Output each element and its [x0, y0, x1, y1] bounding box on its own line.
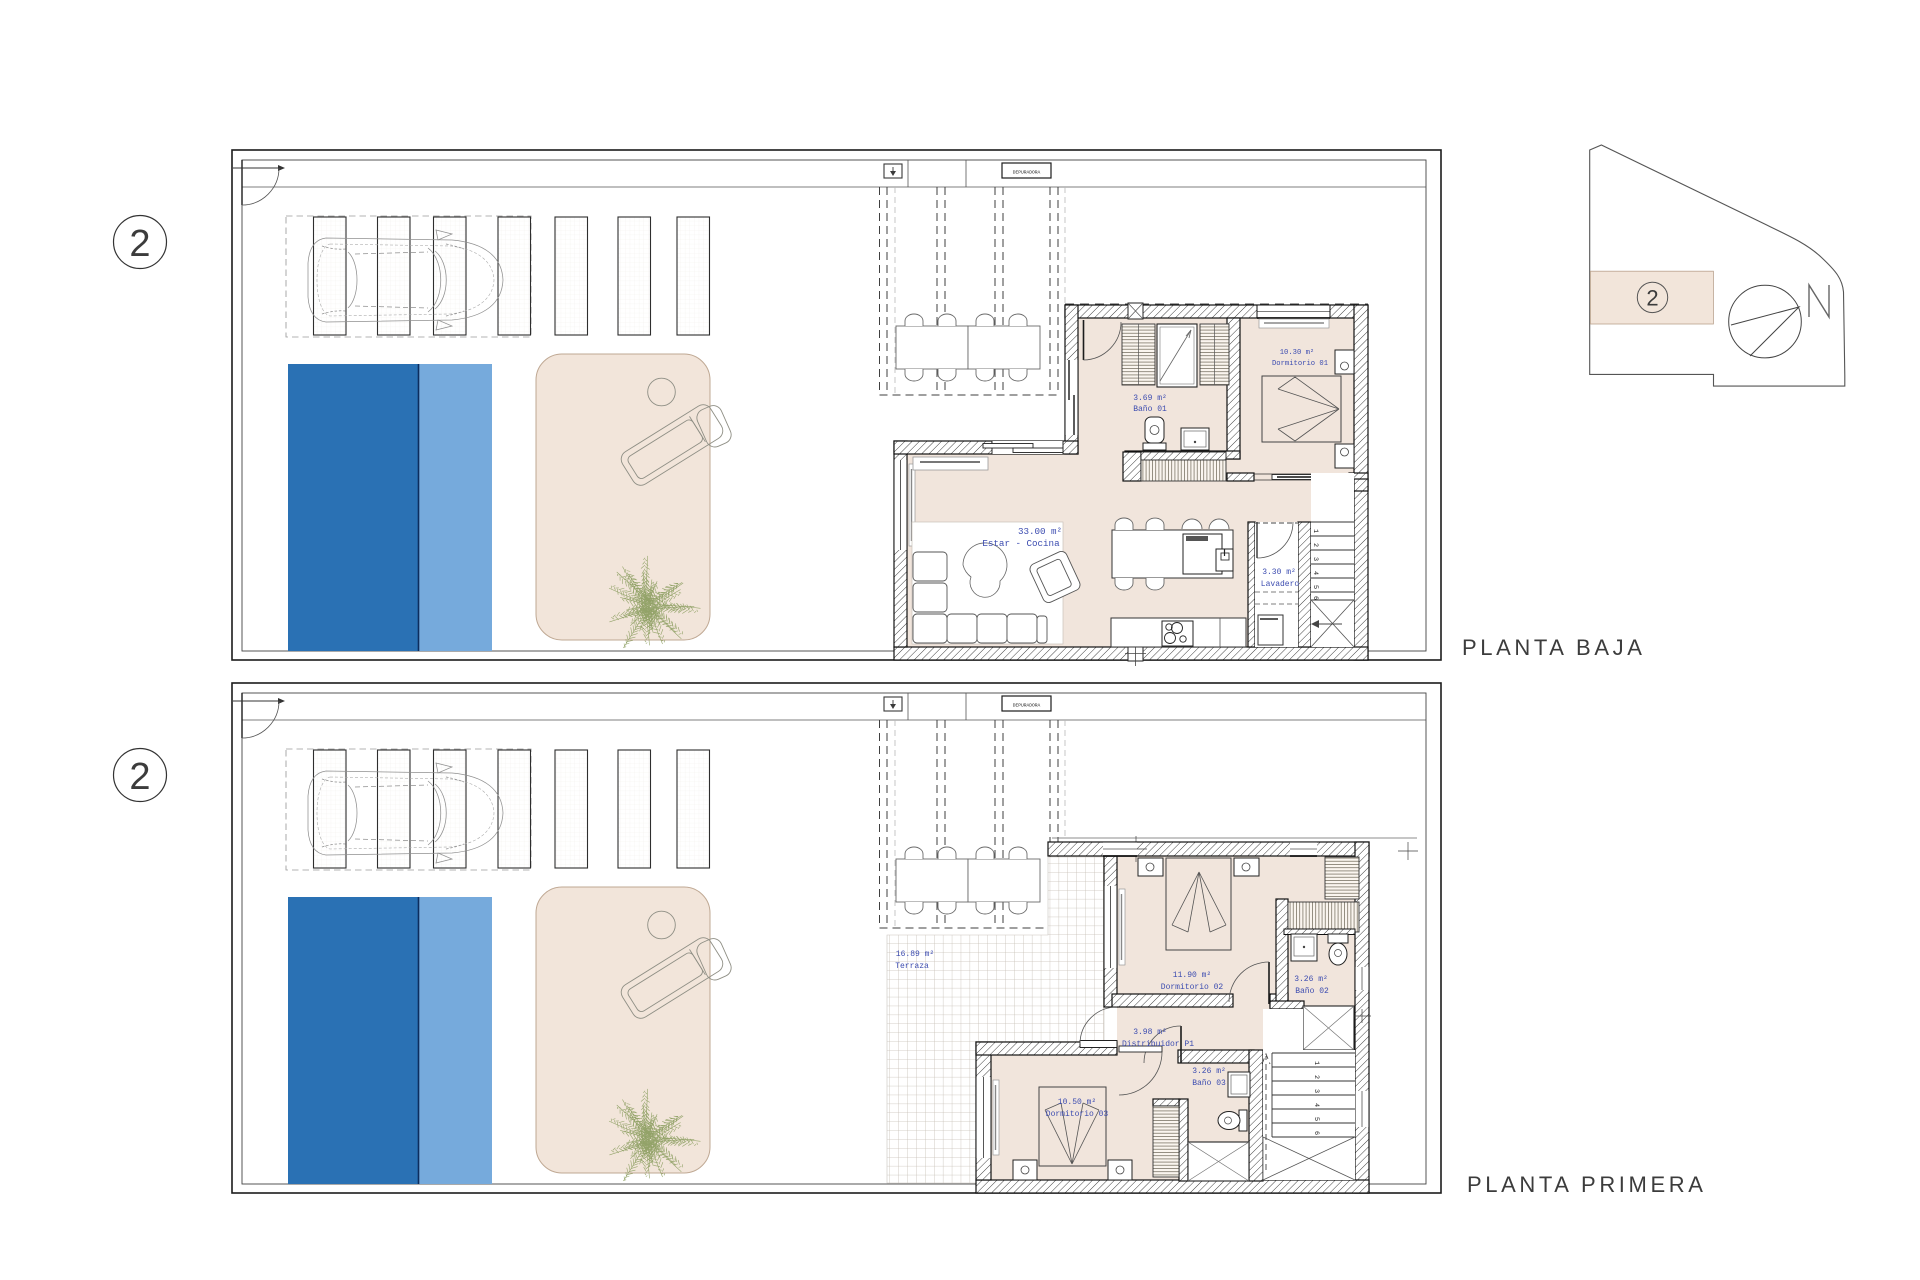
svg-text:5: 5 [1312, 1117, 1320, 1121]
svg-text:3.26 m²: 3.26 m² [1192, 1067, 1226, 1076]
svg-text:Lavadero: Lavadero [1261, 580, 1300, 589]
svg-text:16.89 m²: 16.89 m² [896, 950, 934, 959]
svg-text:1: 1 [1312, 1061, 1320, 1065]
svg-text:3.69 m²: 3.69 m² [1133, 394, 1167, 403]
svg-text:Baño 03: Baño 03 [1192, 1079, 1226, 1088]
svg-text:Baño 02: Baño 02 [1295, 987, 1329, 996]
svg-text:1: 1 [1311, 529, 1319, 533]
svg-text:Dormitorio 03: Dormitorio 03 [1046, 1110, 1109, 1119]
svg-text:Distribuidor P1: Distribuidor P1 [1122, 1040, 1194, 1049]
svg-text:Dormitorio 02: Dormitorio 02 [1161, 983, 1224, 992]
svg-text:2: 2 [129, 756, 150, 798]
svg-text:10.30 m²: 10.30 m² [1280, 348, 1315, 357]
svg-text:11.90 m²: 11.90 m² [1173, 971, 1211, 980]
svg-text:2: 2 [1646, 285, 1658, 310]
svg-text:5: 5 [1311, 585, 1319, 589]
svg-text:4: 4 [1312, 1103, 1320, 1107]
svg-text:2: 2 [1312, 1075, 1320, 1079]
svg-text:4: 4 [1311, 571, 1319, 575]
svg-text:Terraza: Terraza [895, 962, 929, 971]
svg-text:6: 6 [1311, 596, 1319, 600]
svg-text:33.00 m²: 33.00 m² [1018, 526, 1062, 537]
svg-text:PLANTA BAJA: PLANTA BAJA [1462, 635, 1645, 660]
svg-text:2: 2 [129, 223, 150, 265]
svg-text:6: 6 [1312, 1131, 1320, 1135]
svg-text:DEPURADORA: DEPURADORA [1013, 170, 1041, 176]
svg-text:10.50 m²: 10.50 m² [1058, 1098, 1096, 1107]
svg-text:3: 3 [1311, 557, 1319, 561]
svg-text:3: 3 [1312, 1089, 1320, 1093]
svg-text:Estar - Cocina: Estar - Cocina [982, 538, 1060, 549]
svg-text:PLANTA PRIMERA: PLANTA PRIMERA [1467, 1172, 1706, 1197]
svg-text:3.30 m²: 3.30 m² [1262, 568, 1296, 577]
svg-text:Dormitorio 01: Dormitorio 01 [1272, 360, 1328, 368]
svg-text:2: 2 [1311, 543, 1319, 547]
svg-text:Baño 01: Baño 01 [1133, 405, 1167, 414]
svg-text:3.26 m²: 3.26 m² [1294, 975, 1328, 984]
svg-text:3.98 m²: 3.98 m² [1133, 1028, 1167, 1037]
